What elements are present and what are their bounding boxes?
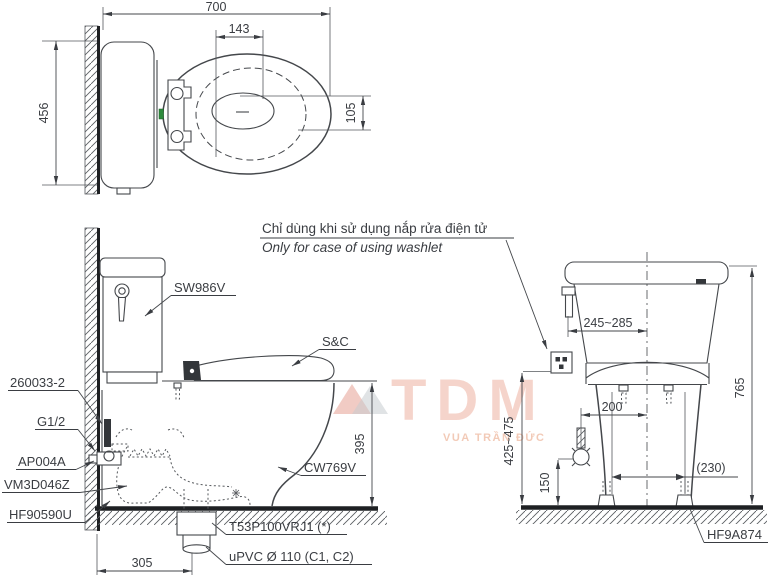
label-floor-flange: HF90590U	[9, 507, 72, 522]
tank-base-side	[107, 372, 157, 383]
wall-hatching-top-view	[85, 26, 98, 194]
note-vietnamese: Chỉ dùng khi sử dụng nắp rửa điện tử	[262, 221, 487, 236]
dim-456-text: 456	[37, 103, 51, 124]
dim-395-text: 395	[353, 434, 367, 455]
dim-105-text: 105	[344, 103, 358, 124]
watermark-tagline: VUA TRẦN ĐỨC	[443, 431, 546, 444]
label-bolt-cap: HF9A874	[707, 527, 762, 542]
flush-lever-front-cap	[562, 287, 575, 295]
hinge-hole-bottom	[171, 131, 183, 143]
label-drain-joint: T53P100VRJ1 (*)	[229, 519, 331, 534]
label-stop-valve: AP004A	[18, 454, 66, 469]
green-clip-marker	[159, 109, 164, 119]
technical-drawing-page: TDM VUA TRẦN ĐỨC 700 14	[0, 0, 771, 579]
seat-hinge-pin	[190, 369, 194, 373]
dim-230-text: (230)	[696, 461, 725, 475]
dim-425-475-text: 425~475	[502, 416, 516, 465]
tank-body-side	[103, 277, 162, 372]
label-drain-pipe: uPVC Ø 110 (C1, C2)	[229, 549, 354, 564]
toilet-installation-drawing: TDM VUA TRẦN ĐỨC 700 14	[0, 0, 771, 579]
label-thread-size: G1/2	[37, 414, 65, 429]
label-bowl-model: CW769V	[304, 460, 356, 475]
dim-200-text: 200	[602, 400, 623, 414]
wall-hatching-side-view	[85, 228, 98, 530]
supply-pipe	[104, 419, 111, 447]
label-connector: VM3D046Z	[4, 477, 70, 492]
watermark-logo-text: TDM	[391, 368, 547, 433]
stop-valve-body	[97, 452, 121, 465]
tank-bottom-tab	[117, 188, 130, 194]
label-tank-model: SW986V	[174, 280, 226, 295]
floor-hatching-front-view	[516, 510, 767, 524]
brand-logo-mark	[696, 279, 706, 284]
trap-star-mark	[232, 489, 240, 497]
flush-lever-front	[566, 295, 573, 317]
dim-305-text: 305	[132, 556, 153, 570]
note-english: Only for case of using washlet	[262, 240, 443, 255]
dim-143-text: 143	[229, 22, 250, 36]
dim-700-text: 700	[206, 0, 227, 14]
hinge-hole-top	[171, 88, 183, 100]
dim-150-text: 150	[538, 473, 552, 494]
label-seat-model: S&C	[322, 334, 349, 349]
flush-lever-hub	[115, 284, 129, 298]
drain-joint-flange	[177, 512, 216, 535]
tank-lid-side	[100, 258, 165, 277]
tank-top-view	[101, 42, 154, 188]
dim-765-text: 765	[733, 378, 747, 399]
dim-245-285-text: 245~285	[583, 316, 632, 330]
label-supply-hose: 260033-2	[10, 375, 65, 390]
